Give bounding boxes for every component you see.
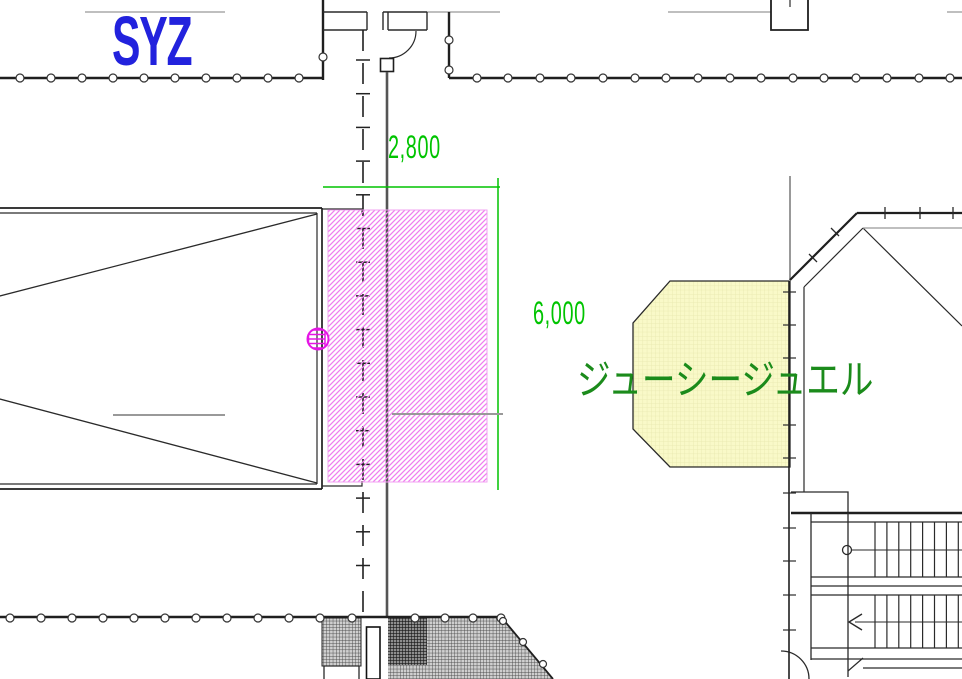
drawing-title-label: SYZ: [112, 6, 191, 76]
top-wall-right: [449, 12, 962, 78]
floor-plan-drawing: [0, 0, 962, 679]
left-escalator-hall: [0, 208, 362, 489]
door-swing-arc: [781, 651, 809, 679]
tenant-name-label[interactable]: ジューシージュエル: [577, 360, 874, 401]
stair-direction-arrow: [849, 614, 962, 630]
right-corridor-walls: [783, 176, 962, 679]
entry-door: [381, 12, 428, 72]
survey-point-symbol: [308, 329, 329, 350]
dimension-width-label: 2,800: [388, 131, 441, 163]
cad-viewport[interactable]: SYZ 2,800 6,000 ジューシージュエル: [0, 0, 962, 679]
column-pillar: [367, 627, 381, 679]
handrail-post-circle: [843, 546, 852, 555]
highlight-area-hatch[interactable]: [328, 210, 487, 482]
escalator-mass-left: [322, 618, 361, 666]
dimension-height-label: 6,000: [533, 297, 586, 329]
top-duct-shaft: [771, 0, 808, 30]
escalator-mass-dark: [388, 618, 427, 665]
staircase: [781, 492, 962, 679]
door-post: [381, 59, 394, 72]
bottom-hatch-zone: [0, 617, 553, 679]
